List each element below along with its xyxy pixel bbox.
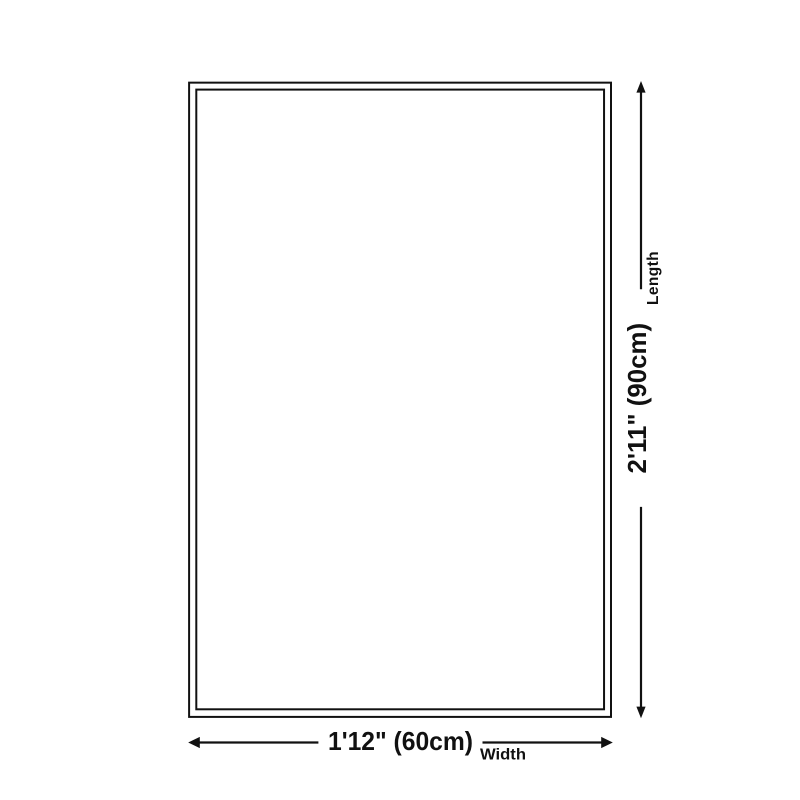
- svg-text:1'12" (60cm): 1'12" (60cm): [328, 726, 473, 756]
- svg-text:Length: Length: [645, 251, 662, 305]
- svg-text:Width: Width: [480, 746, 526, 763]
- svg-text:2'11" (90cm): 2'11" (90cm): [622, 323, 652, 474]
